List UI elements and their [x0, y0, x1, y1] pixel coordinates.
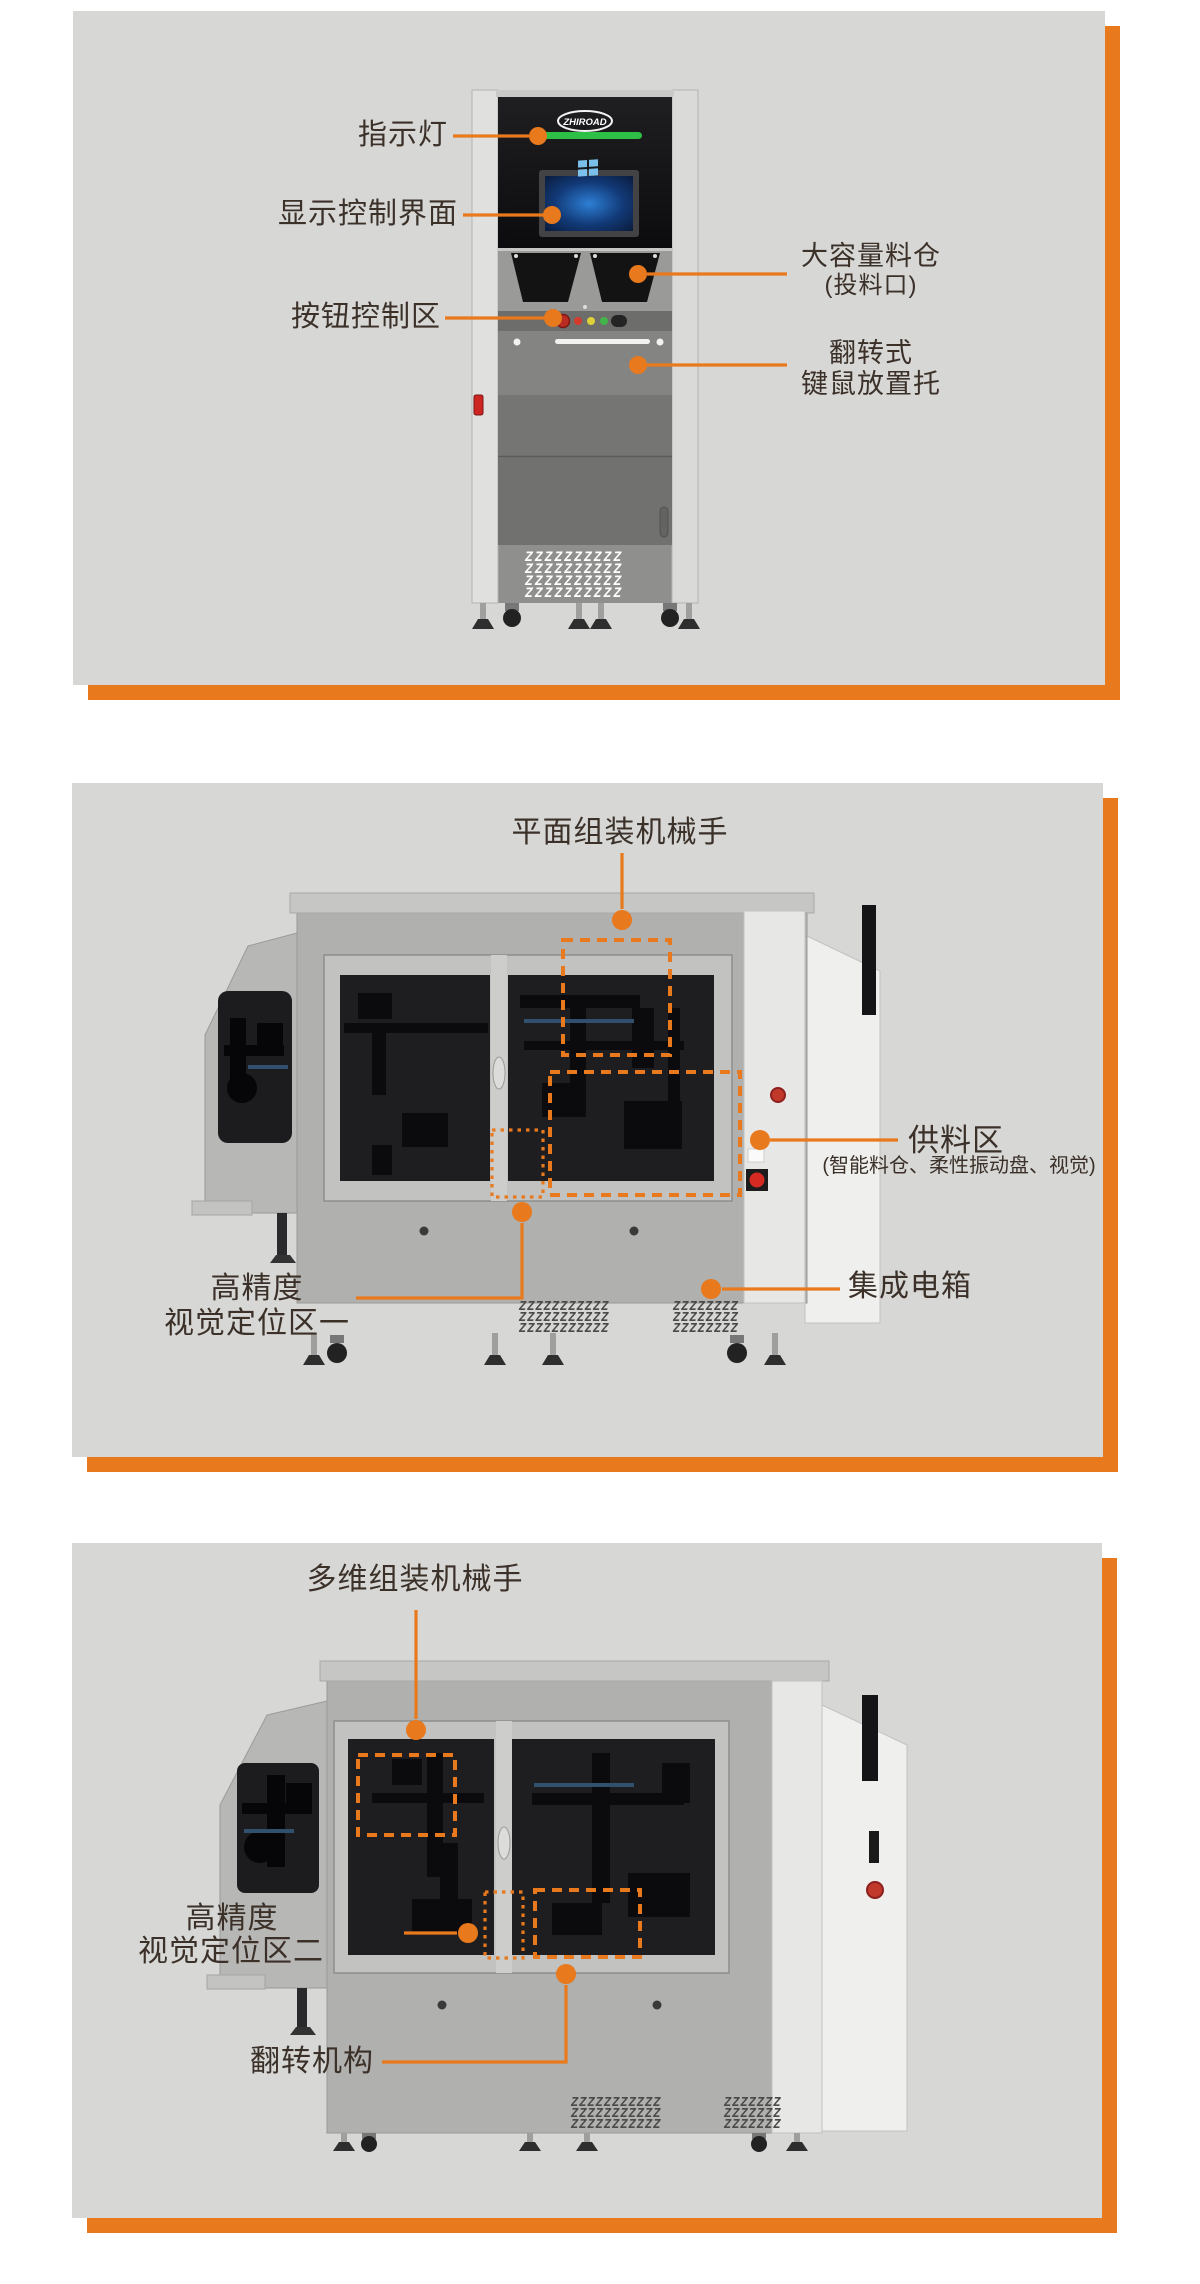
label-vision1-a: 高精度: [182, 1272, 332, 1307]
indicator-light-bar: [539, 132, 642, 139]
label-vision2-a: 高精度: [157, 1902, 307, 1937]
touch-screen: [539, 159, 639, 237]
doors: [334, 1721, 729, 1973]
label-planar-robot: 平面组装机械手: [470, 816, 770, 851]
label-ebox: 集成电箱: [848, 1270, 972, 1305]
machine-side-view-multidim: ZZZZZZZZZZZZZZZZZZZZZZZZZZZZZZZZZ ZZZZZZ…: [72, 1543, 1102, 2218]
label-hopper-1: 大容量料仓: [795, 241, 947, 272]
label-indicator: 指示灯: [323, 119, 448, 152]
door-handle: [493, 1057, 505, 1089]
vent-grids: ZZZZZZZZZZZZZZZZZZZZZZZZZZZZZZZZZ ZZZZZZ…: [518, 1299, 739, 1335]
label-vision1-b: 视觉定位区一: [164, 1307, 350, 1342]
casters: [503, 603, 679, 627]
machine-front-view: ZHIROAD: [73, 11, 1105, 685]
door-lower: [498, 457, 672, 545]
power-switch: [474, 395, 483, 415]
feet: [472, 603, 700, 629]
feet: [333, 2133, 808, 2152]
svg-text:ZZZZZZZZZZZ: ZZZZZZZZZZZ: [518, 1321, 609, 1335]
estop-button: [771, 1088, 785, 1102]
supply-tower: [744, 911, 805, 1303]
label-multidim-robot: 多维组装机械手: [265, 1563, 565, 1598]
svg-text:ZHIROAD: ZHIROAD: [562, 117, 606, 128]
svg-text:ZZZZZZZZZZZ: ZZZZZZZZZZZ: [570, 2117, 661, 2131]
door-handle: [660, 507, 668, 537]
side-tower: [772, 1681, 822, 2133]
label-vision2-b: 视觉定位区二: [138, 1935, 324, 1970]
panel-side-view-planar: ZZZZZZZZZZZZZZZZZZZZZZZZZZZZZZZZZ ZZZZZZ…: [72, 783, 1103, 1457]
tray-slot: [555, 339, 650, 344]
label-feed-area: 供料区: [908, 1123, 1004, 1159]
svg-text:ZZZZZZZZZZ: ZZZZZZZZZZ: [524, 586, 623, 601]
label-feed-sub: (智能料仓、柔性振动盘、视觉): [814, 1155, 1104, 1178]
estop-button: [867, 1882, 883, 1898]
label-flip-mechanism: 翻转机构: [247, 2045, 377, 2080]
door-handle: [498, 1827, 510, 1859]
panel-side-view-multidim: ZZZZZZZZZZZZZZZZZZZZZZZZZZZZZZZZZ ZZZZZZ…: [72, 1543, 1102, 2218]
cabinet: ZHIROAD: [472, 90, 700, 629]
svg-text:ZZZZZZZZ: ZZZZZZZZ: [672, 1321, 739, 1335]
left-wing: [207, 1701, 327, 2035]
label-buttons: 按钮控制区: [291, 301, 441, 334]
button-strip: [498, 311, 672, 331]
label-hopper-2: (投料口): [795, 272, 947, 300]
page: { "page": { "accent_orange": "#E8791D", …: [0, 0, 1200, 2284]
label-tray-1: 翻转式: [795, 338, 947, 369]
svg-text:ZZZZZZZ: ZZZZZZZ: [723, 2117, 782, 2131]
panel-front-view: ZHIROAD: [73, 11, 1105, 685]
door-upper: [498, 395, 672, 456]
machine-side-view-planar: ZZZZZZZZZZZZZZZZZZZZZZZZZZZZZZZZZ ZZZZZZ…: [72, 783, 1103, 1457]
label-tray-2: 键鼠放置托: [795, 369, 947, 400]
vent-grid: ZZZZZZZZZZ ZZZZZZZZZZ ZZZZZZZZZZ ZZZZZZZ…: [524, 550, 623, 601]
label-display: 显示控制界面: [278, 198, 458, 231]
feet: [303, 1333, 786, 1365]
left-wing: [192, 933, 297, 1263]
